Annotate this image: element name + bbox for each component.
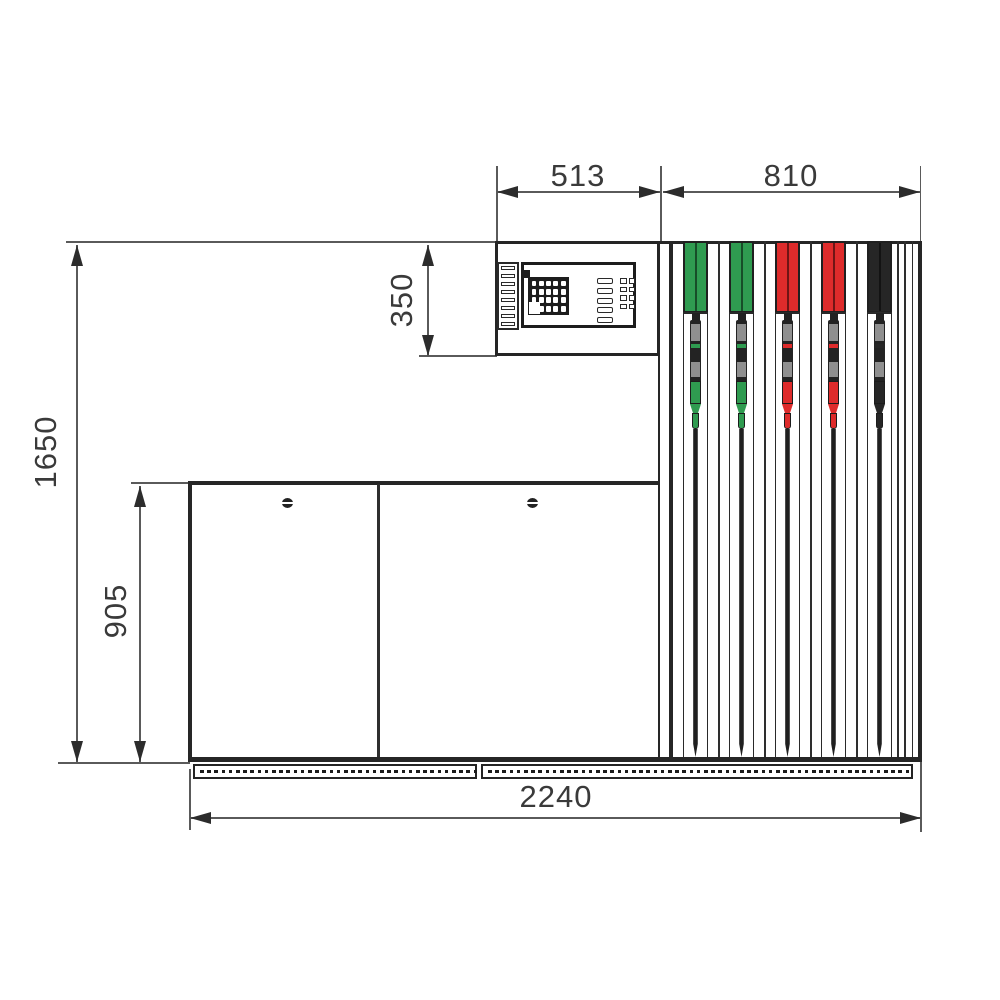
strip-slot (501, 306, 515, 310)
plinth-vent-dot (229, 770, 233, 774)
plinth-vent-dot (337, 770, 341, 774)
arrowhead-810-right (899, 186, 920, 198)
strip-slot (501, 266, 515, 270)
nozzle-grip-upper (875, 324, 884, 341)
fuel-hose (739, 429, 744, 757)
plinth-vent-dot (675, 770, 679, 774)
keypad-key (561, 281, 566, 287)
plinth-vent-dot (567, 770, 571, 774)
plinth-vent-dot (200, 770, 204, 774)
plinth-vent-dot (862, 770, 866, 774)
plinth-vent-dot (682, 770, 686, 774)
ext-line-left-513 (496, 166, 498, 241)
keypad-key (532, 281, 537, 287)
nozzle-color-band (875, 344, 884, 348)
arrowhead-905-top (134, 486, 146, 507)
plinth-vent-dot (740, 770, 744, 774)
base-plinth-right (481, 764, 913, 779)
plinth-vent-dot (531, 770, 535, 774)
plinth-vent-dot (625, 770, 629, 774)
plinth-vent-dot (430, 770, 434, 774)
boot-center-line (787, 243, 789, 311)
arrowhead-1650-bottom (71, 741, 83, 762)
ext-line-mid-513-810 (660, 166, 662, 241)
plinth-vent-dot (610, 770, 614, 774)
function-slot (597, 278, 613, 284)
keypad-key (532, 289, 537, 295)
vent-slot (620, 278, 627, 284)
plinth-vent-dot (596, 770, 600, 774)
arrowhead-350-top (422, 245, 434, 266)
plinth-vent-dot (884, 770, 888, 774)
holster-slot-left-line (867, 313, 869, 760)
plinth-vent-dot (351, 770, 355, 774)
nozzle-grip-upper (691, 324, 700, 341)
vent-slot (620, 295, 627, 301)
nozzle-grip-lower (875, 362, 884, 377)
plinth-vent-dot (769, 770, 773, 774)
function-slot (597, 298, 613, 304)
plinth-vent-dot (488, 770, 492, 774)
vent-slot (629, 287, 636, 293)
nozzle-station-red-1-boot (775, 241, 800, 313)
plinth-vent-dot (639, 770, 643, 774)
dim-label-overall-height: 1650 (28, 392, 64, 512)
plinth-vent-dot (222, 770, 226, 774)
column-right-line-2 (904, 241, 906, 760)
ext-line-top-1650 (66, 241, 495, 243)
dim-label-cabinet-height: 905 (98, 551, 134, 671)
door-divider (377, 484, 380, 757)
dim-label-head-height: 350 (384, 240, 420, 360)
nozzle-grip-upper (783, 324, 792, 341)
nozzle-spout (876, 413, 884, 429)
nozzle-station-black-boot (867, 241, 892, 313)
nozzle-spout (830, 413, 838, 429)
plinth-vent-dot (805, 770, 809, 774)
plinth-vent-dot (272, 770, 276, 774)
keypad-key (546, 306, 551, 312)
arrowhead-513-left (497, 186, 518, 198)
plinth-vent-dot (301, 770, 305, 774)
fuel-hose (831, 429, 836, 757)
plinth-vent-dot (445, 770, 449, 774)
dim-label-head-width: 513 (518, 158, 638, 194)
plinth-vent-dot (380, 770, 384, 774)
plinth-vent-dot (373, 770, 377, 774)
plinth-vent-dot (387, 770, 391, 774)
plinth-vent-dot (690, 770, 694, 774)
strip-slot (501, 274, 515, 278)
plinth-vent-dot (358, 770, 362, 774)
plinth-vent-dot (510, 770, 514, 774)
station-divider-line (810, 241, 812, 760)
plinth-vent-dot (495, 770, 499, 774)
boot-center-line (833, 243, 835, 311)
nozzle-station-green-2-boot (729, 241, 754, 313)
plinth-vent-dot (906, 770, 910, 774)
plinth-vent-dot (546, 770, 550, 774)
column-right-line-1 (897, 241, 899, 760)
strip-slot (501, 322, 515, 326)
dim-line-1650 (76, 245, 78, 763)
ext-line-right-810 (920, 166, 922, 241)
dim-label-hose-width: 810 (731, 158, 851, 194)
arrowhead-905-bottom (134, 741, 146, 762)
plinth-vent-dot (747, 770, 751, 774)
vent-slot (620, 304, 627, 310)
arrowhead-2240-left (190, 812, 211, 824)
function-slot (597, 317, 613, 323)
plinth-vent-dot (704, 770, 708, 774)
plinth-vent-dot (618, 770, 622, 774)
holster-slot-left-line (821, 313, 823, 760)
plinth-vent-dot (265, 770, 269, 774)
plinth-vent-dot (834, 770, 838, 774)
function-slot (597, 307, 613, 313)
holster-slot-right-line (845, 313, 847, 760)
keypad-key (539, 289, 544, 295)
plinth-vent-dot (754, 770, 758, 774)
plinth-vent-dot (322, 770, 326, 774)
boot-center-line (741, 243, 743, 311)
plinth-vent-dot (466, 770, 470, 774)
plinth-vent-dot (250, 770, 254, 774)
holster-slot-left-line (729, 313, 731, 760)
cabinet-top-edge (188, 481, 660, 485)
plinth-vent-dot (812, 770, 816, 774)
keypad-key (546, 289, 551, 295)
plinth-vent-dot (344, 770, 348, 774)
nozzle-grip-lower (691, 362, 700, 377)
plinth-vent-dot (646, 770, 650, 774)
plinth-vent-dot (502, 770, 506, 774)
nozzle-spout (692, 413, 700, 429)
plinth-vent-dot (438, 770, 442, 774)
nozzle-spout (738, 413, 746, 429)
plinth-vent-dot (286, 770, 290, 774)
plinth-vent-dot (776, 770, 780, 774)
door-lock-right (527, 498, 538, 508)
arrowhead-513-right (639, 186, 660, 198)
door-lock-left (282, 498, 293, 508)
nozzle-station-red-2-boot (821, 241, 846, 313)
arrowhead-350-bottom (422, 335, 434, 356)
plinth-vent-dot (826, 770, 830, 774)
nozzle-grip-upper (737, 324, 746, 341)
holster-slot-right-line (891, 313, 893, 760)
plinth-vent-dot (891, 770, 895, 774)
plinth-vent-dot (243, 770, 247, 774)
boot-center-line (695, 243, 697, 311)
plinth-vent-dot (294, 770, 298, 774)
machine-bottom-edge (188, 757, 922, 762)
holster-slot-right-line (799, 313, 801, 760)
plinth-vent-dot (589, 770, 593, 774)
vent-slot (620, 287, 627, 293)
plinth-vent-dot (855, 770, 859, 774)
plinth-vent-dot (877, 770, 881, 774)
plinth-vent-dot (538, 770, 542, 774)
plinth-vent-dot (632, 770, 636, 774)
plinth-vent-dot (654, 770, 658, 774)
ext-line-bottom-1650 (58, 762, 190, 764)
plinth-vent-dot (236, 770, 240, 774)
plinth-vent-dot (308, 770, 312, 774)
arrowhead-2240-right (900, 812, 921, 824)
plinth-vent-dot (697, 770, 701, 774)
plinth-vent-dot (416, 770, 420, 774)
keypad-key (546, 281, 551, 287)
plinth-vent-dot (848, 770, 852, 774)
plinth-vent-dot (841, 770, 845, 774)
cabinet-left-edge (188, 481, 192, 761)
plinth-vent-dot (214, 770, 218, 774)
plinth-vent-dot (711, 770, 715, 774)
plinth-vent-dot (459, 770, 463, 774)
plinth-vent-dot (574, 770, 578, 774)
plinth-vent-dot (668, 770, 672, 774)
keypad-key (553, 281, 558, 287)
strip-slot (501, 314, 515, 318)
plinth-vent-dot (366, 770, 370, 774)
station-divider-line (718, 241, 720, 760)
column-left-line-inner (669, 241, 673, 762)
strip-slot (501, 282, 515, 286)
station-divider-line (856, 241, 858, 760)
drawing-canvas: 1650 905 350 513 810 2240 (0, 0, 1000, 1000)
plinth-vent-dot (207, 770, 211, 774)
nozzle-body (690, 381, 701, 404)
holster-slot-left-line (775, 313, 777, 760)
plinth-vent-dot (402, 770, 406, 774)
plinth-vent-dot (733, 770, 737, 774)
nozzle-color-band (783, 344, 792, 348)
nozzle-grip-upper (829, 324, 838, 341)
plinth-vent-dot (603, 770, 607, 774)
plinth-vent-dot (582, 770, 586, 774)
nozzle-body (782, 381, 793, 404)
keypad-key (561, 297, 566, 303)
keypad-key (553, 289, 558, 295)
plinth-vent-dot (718, 770, 722, 774)
plinth-vent-dot (553, 770, 557, 774)
plinth-vent-dot (279, 770, 283, 774)
plinth-vent-dot (819, 770, 823, 774)
strip-slot (501, 298, 515, 302)
nozzle-body (736, 381, 747, 404)
keypad-key (546, 297, 551, 303)
plinth-vent-dot (423, 770, 427, 774)
plinth-vent-dot (798, 770, 802, 774)
station-divider-line (764, 241, 766, 760)
vent-slot (629, 295, 636, 301)
holster-slot-right-line (753, 313, 755, 760)
base-plinth-left (193, 764, 477, 779)
column-left-line-outer (658, 241, 660, 762)
plinth-vent-dot (790, 770, 794, 774)
plinth-vent-dot (661, 770, 665, 774)
nozzle-spout (784, 413, 792, 429)
plinth-vent-dot (560, 770, 564, 774)
nozzle-grip-lower (783, 362, 792, 377)
dim-label-overall-width: 2240 (496, 779, 616, 815)
arrowhead-810-left (663, 186, 684, 198)
plinth-vent-dot (452, 770, 456, 774)
plinth-vent-dot (394, 770, 398, 774)
plinth-vent-dot (870, 770, 874, 774)
plinth-vent-dot (409, 770, 413, 774)
plinth-vent-dot (783, 770, 787, 774)
dim-line-2240 (190, 817, 921, 819)
fuel-hose (877, 429, 882, 757)
plinth-vent-dot (315, 770, 319, 774)
nozzle-color-band (829, 344, 838, 348)
nozzle-grip-lower (737, 362, 746, 377)
arrowhead-1650-top (71, 245, 83, 266)
nozzle-grip-lower (829, 362, 838, 377)
function-slot (597, 288, 613, 294)
plinth-vent-dot (898, 770, 902, 774)
dim-line-905 (139, 486, 141, 762)
keypad-key (553, 306, 558, 312)
nozzle-body (828, 381, 839, 404)
strip-slot (501, 290, 515, 294)
column-right-line-3 (912, 241, 914, 760)
plinth-vent-dot (762, 770, 766, 774)
vent-slot (629, 278, 636, 284)
nozzle-body (874, 381, 885, 404)
nozzle-color-band (691, 344, 700, 348)
receipt-slot-strip (497, 262, 519, 330)
keypad-enter-key (529, 302, 540, 314)
boot-center-line (879, 243, 881, 311)
holster-slot-right-line (707, 313, 709, 760)
fuel-hose (693, 429, 698, 757)
keypad-key (561, 289, 566, 295)
keypad-key (539, 281, 544, 287)
vent-slot (629, 304, 636, 310)
machine-right-edge (918, 241, 922, 762)
keypad-key (553, 297, 558, 303)
fuel-hose (785, 429, 790, 757)
plinth-vent-dot (330, 770, 334, 774)
plinth-vent-dot (258, 770, 262, 774)
holster-slot-left-line (683, 313, 685, 760)
plinth-vent-dot (524, 770, 528, 774)
keypad-key (561, 306, 566, 312)
ext-line-top-905 (131, 482, 188, 484)
nozzle-color-band (737, 344, 746, 348)
plinth-vent-dot (726, 770, 730, 774)
plinth-vent-dot (517, 770, 521, 774)
plinth-vent-dot (474, 770, 478, 774)
nozzle-station-green-1-boot (683, 241, 708, 313)
